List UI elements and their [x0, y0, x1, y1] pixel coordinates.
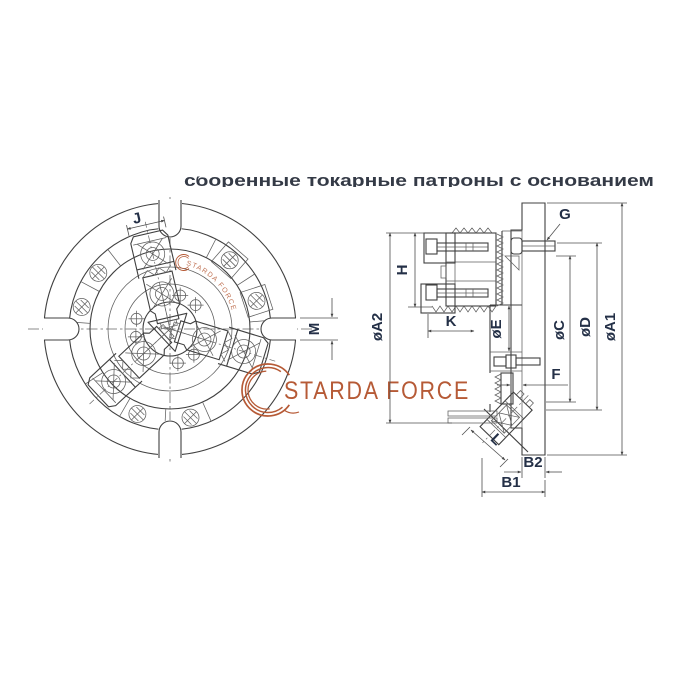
dimension-f: F	[497, 366, 568, 391]
brand-logo: STARDA FORCE	[242, 364, 470, 416]
logo-text: STARDA FORCE	[284, 377, 470, 405]
page-title: сборённые токарные патроны с основанием	[184, 171, 654, 190]
dimension-oe: øE	[488, 306, 509, 351]
dim-label-od: øD	[577, 317, 594, 337]
front-view: J M STARDA FORCE	[28, 197, 338, 463]
side-tilted-jaw	[473, 386, 538, 452]
dim-label-oa2: øA2	[369, 313, 386, 341]
side-upper-jaw-assembly	[421, 228, 503, 313]
side-bolt-g	[511, 238, 555, 254]
dim-label-b1: B1	[501, 474, 520, 491]
dim-label-g: G	[559, 206, 571, 223]
dim-label-b2: B2	[523, 454, 542, 471]
dimension-k: K	[428, 313, 474, 338]
technical-drawing: сборённые токарные патроны с основанием	[0, 0, 680, 682]
watermark-text: STARDA FORCE	[185, 260, 237, 312]
page-heading: сборённые токарные патроны с основанием	[184, 171, 654, 190]
dimension-m: M	[300, 298, 338, 360]
dimension-g: G	[547, 206, 571, 240]
front-jaw-lower-left	[77, 310, 189, 418]
side-lower-bolt	[494, 355, 540, 368]
dim-label-oc: øC	[551, 320, 568, 340]
dim-label-oa1: øA1	[602, 313, 619, 341]
catalog-drawing-page: сборённые токарные патроны с основанием	[0, 0, 680, 682]
dim-label-oe: øE	[488, 319, 505, 338]
side-lower-jaw-guide	[495, 373, 513, 404]
dim-label-k: K	[446, 313, 457, 330]
dim-label-m: M	[306, 323, 323, 336]
dim-label-f: F	[551, 366, 560, 383]
dim-label-j: J	[131, 209, 143, 227]
dim-label-h: H	[394, 265, 411, 276]
brand-watermark-small: STARDA FORCE	[176, 254, 237, 312]
side-view: G H øA2 K øE øC	[369, 203, 627, 497]
dimension-l: L	[462, 427, 508, 467]
